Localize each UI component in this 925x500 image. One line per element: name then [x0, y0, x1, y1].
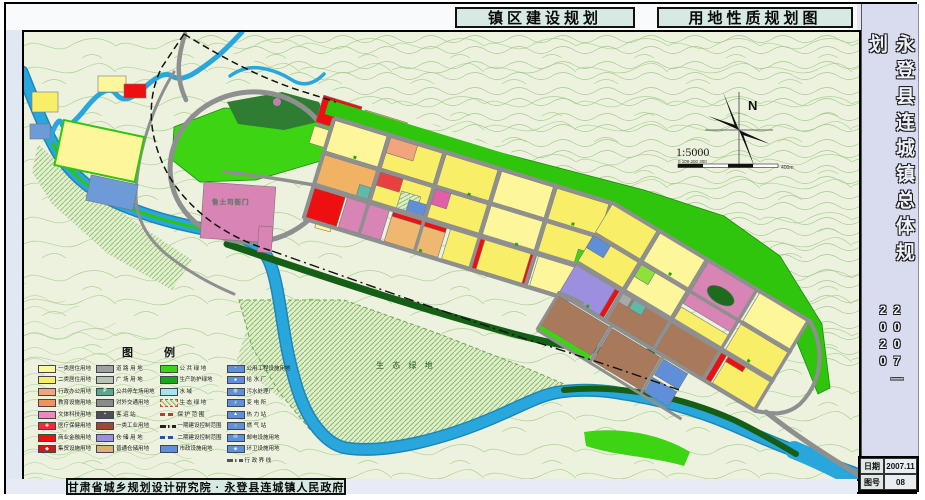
legend-swatch-icon: ✉ — [233, 435, 237, 440]
legend-swatch-icon: ▲ — [233, 412, 238, 417]
sheet-value: 08 — [884, 474, 917, 490]
legend-item: 教育设施用地 — [38, 400, 91, 407]
legend-item: 商业金融用地 — [38, 434, 91, 441]
legend-swatch — [160, 436, 176, 439]
legend-swatch — [96, 422, 114, 430]
legend-swatch-icon: ○ — [234, 424, 237, 429]
legend-item: ▲热 力 站 — [227, 411, 291, 418]
legend-item: 行 政 界 线 — [227, 457, 291, 464]
title-landuse-text: 用地性质规划图 — [688, 7, 821, 28]
legend-swatch — [38, 434, 56, 442]
legend-label: 客 运 站 — [116, 412, 136, 418]
legend-item: ✚医疗保健用地 — [38, 423, 91, 430]
legend-item: 对外交通用地 — [96, 400, 155, 407]
legend-swatch — [160, 376, 178, 384]
legend-item: 行政办公用地 — [38, 388, 91, 395]
legend-swatch-icon: ◆ — [45, 447, 49, 452]
legend-item: ○燃 气 站 — [227, 423, 291, 430]
legend-swatch-icon: P — [103, 389, 106, 394]
legend-item: 二期建设控制范围 — [160, 434, 222, 441]
legend-swatch: P — [96, 388, 114, 396]
legend-label: 集贸设施用地 — [58, 446, 91, 452]
legend-label: 生产防护绿地 — [180, 377, 213, 383]
legend-swatch-icon: ◍ — [233, 389, 237, 394]
legend-swatch — [96, 445, 114, 453]
sheet-label: 图号 — [860, 474, 884, 490]
legend-label: 热 力 站 — [247, 412, 267, 418]
legend-swatch-icon: ▪ — [104, 412, 106, 417]
legend-label: 广 场 用 地 — [116, 377, 143, 383]
legend-item: 普通仓储用地 — [96, 446, 155, 453]
legend-item: ▫公用工程设施用地 — [227, 365, 291, 372]
eco-green-label: 生 态 绿 地 — [376, 360, 436, 370]
legend-label: 水 域 — [180, 389, 193, 395]
legend-swatch-icon: ● — [234, 378, 237, 383]
legend-swatch-icon: ◈ — [234, 447, 238, 452]
legend-item: ◈环卫设施用地 — [227, 446, 291, 453]
legend-item: ◍污水处理厂 — [227, 388, 291, 395]
legend-column: 一类居住用地二类居住用地行政办公用地教育设施用地文体科技用地✚医疗保健用地商业金… — [38, 365, 91, 464]
info-table: 日期 2007.11 图号 08 — [858, 456, 919, 492]
legend-item: 广 场 用 地 — [96, 377, 155, 384]
legend-swatch-icon: ⚡ — [234, 401, 238, 406]
legend-label: 教育设施用地 — [58, 400, 91, 406]
legend-swatch — [96, 376, 114, 384]
legend-item: 保 护 范 围 — [160, 411, 222, 418]
legend-label: 二期建设控制范围 — [178, 435, 222, 441]
legend-label: 生 态 绿 地 — [180, 400, 207, 406]
legend-label: 医疗保健用地 — [58, 423, 91, 429]
legend-swatch — [160, 425, 176, 428]
legend-swatch: ◈ — [227, 445, 245, 453]
legend-swatch-icon: ✚ — [45, 424, 49, 429]
legend-swatch — [160, 399, 178, 407]
legend-swatch — [96, 399, 114, 407]
map-area: 生 态 绿 地 — [22, 30, 861, 481]
date-label: 日期 — [860, 458, 884, 474]
legend-item: ⚡变 电 所 — [227, 400, 291, 407]
legend-item: ●给 水 厂 — [227, 377, 291, 384]
legend-item: 公 共 绿 地 — [160, 365, 222, 372]
north-label: N — [748, 98, 757, 113]
legend-title: 图 例 — [122, 344, 284, 360]
legend-column: 公 共 绿 地生产防护绿地水 域生 态 绿 地保 护 范 围一期建设控制范围二期… — [160, 365, 222, 464]
legend-swatch — [38, 388, 56, 396]
legend-swatch — [160, 365, 178, 373]
legend-swatch: ✚ — [38, 422, 56, 430]
legend-swatch: ▫ — [227, 365, 245, 373]
date-value: 2007.11 — [884, 458, 917, 474]
legend-label: 仓 储 用 地 — [116, 435, 143, 441]
legend-swatch: ▲ — [227, 411, 245, 419]
legend-label: 污水处理厂 — [247, 389, 275, 395]
legend-item: ▪客 运 站 — [96, 411, 155, 418]
scale-tick-labels: 0 100 200 300 — [678, 159, 707, 164]
legend-label: 行 政 界 线 — [245, 458, 272, 464]
legend-swatch: ✉ — [227, 434, 245, 442]
legend-label: 行政办公用地 — [58, 389, 91, 395]
legend-swatch — [38, 411, 56, 419]
legend-label: 对外交通用地 — [116, 400, 149, 406]
legend-swatch: ⚡ — [227, 399, 245, 407]
sidebar: 永登县连城镇总体规划 2007—2020 — [861, 4, 919, 456]
legend-item: 二类居住用地 — [38, 377, 91, 384]
legend-item: ✉邮电设施用地 — [227, 434, 291, 441]
legend-swatch: ● — [227, 376, 245, 384]
legend-columns: 一类居住用地二类居住用地行政办公用地教育设施用地文体科技用地✚医疗保健用地商业金… — [38, 365, 284, 464]
legend-item: 文体科技用地 — [38, 411, 91, 418]
legend-swatch-icon: ▫ — [235, 366, 237, 371]
scale-text: 1:5000 — [676, 145, 709, 159]
legend-label: 邮电设施用地 — [247, 435, 280, 441]
legend-column: 道 路 用 地广 场 用 地P公共停车场用地对外交通用地▪客 运 站一类工业用地… — [96, 365, 155, 464]
legend-item: 市政设施用地 — [160, 446, 222, 453]
credit-box: 甘肃省城乡规划设计研究院 · 永登县连城镇人民政府 — [66, 478, 346, 495]
legend-swatch — [96, 434, 114, 442]
title-box-landuse: 用地性质规划图 — [657, 7, 853, 28]
legend-item: 生 态 绿 地 — [160, 400, 222, 407]
legend-label: 公共停车场用地 — [116, 389, 155, 395]
legend-item: 水 域 — [160, 388, 222, 395]
legend-item: 生产防护绿地 — [160, 377, 222, 384]
legend-label: 道 路 用 地 — [116, 366, 143, 372]
scale-end-label: 400m — [781, 165, 794, 171]
legend-swatch: ▪ — [96, 411, 114, 419]
legend-label: 文体科技用地 — [58, 412, 91, 418]
legend-item: 道 路 用 地 — [96, 365, 155, 372]
page: { "frame": { "titles": [ {"label": "镇区建设… — [0, 0, 925, 500]
legend-column: ▫公用工程设施用地●给 水 厂◍污水处理厂⚡变 电 所▲热 力 站○燃 气 站✉… — [227, 365, 291, 464]
legend-label: 公 共 绿 地 — [180, 366, 207, 372]
sidebar-period: 2007—2020 — [876, 303, 904, 456]
legend-swatch — [38, 376, 56, 384]
sidebar-title: 永登县连城镇总体规划 — [863, 34, 917, 293]
legend-label: 一期建设控制范围 — [178, 423, 222, 429]
legend-label: 普通仓储用地 — [116, 446, 149, 452]
legend-swatch — [160, 413, 176, 416]
legend-item: P公共停车场用地 — [96, 388, 155, 395]
legend-label: 一类工业用地 — [116, 423, 149, 429]
legend-label: 保 护 范 围 — [178, 412, 205, 418]
legend-swatch: ○ — [227, 422, 245, 430]
legend: 图 例 一类居住用地二类居住用地行政办公用地教育设施用地文体科技用地✚医疗保健用… — [38, 344, 284, 464]
legend-item: 仓 储 用 地 — [96, 434, 155, 441]
legend-label: 燃 气 站 — [247, 423, 267, 429]
legend-label: 商业金融用地 — [58, 435, 91, 441]
title-box-plan: 镇区建设规划 — [455, 7, 635, 28]
heritage-label: 鲁土司衙门 — [212, 197, 250, 206]
legend-item: 一类工业用地 — [96, 423, 155, 430]
legend-swatch: ◍ — [227, 388, 245, 396]
legend-label: 一类居住用地 — [58, 366, 91, 372]
legend-item: ◆集贸设施用地 — [38, 446, 91, 453]
legend-swatch: ◆ — [38, 445, 56, 453]
legend-label: 二类居住用地 — [58, 377, 91, 383]
legend-label: 公用工程设施用地 — [247, 366, 291, 372]
legend-swatch — [38, 365, 56, 373]
legend-label: 市政设施用地 — [180, 446, 213, 452]
legend-swatch — [160, 445, 178, 453]
legend-swatch — [38, 399, 56, 407]
legend-label: 给 水 厂 — [247, 377, 267, 383]
legend-label: 环卫设施用地 — [247, 446, 280, 452]
legend-label: 变 电 所 — [247, 400, 267, 406]
credit-text: 甘肃省城乡规划设计研究院 · 永登县连城镇人民政府 — [68, 479, 345, 495]
legend-swatch — [96, 365, 114, 373]
legend-item: 一类居住用地 — [38, 365, 91, 372]
legend-swatch — [160, 388, 178, 396]
legend-swatch — [227, 459, 243, 462]
legend-item: 一期建设控制范围 — [160, 423, 222, 430]
title-plan-text: 镇区建设规划 — [488, 7, 602, 28]
